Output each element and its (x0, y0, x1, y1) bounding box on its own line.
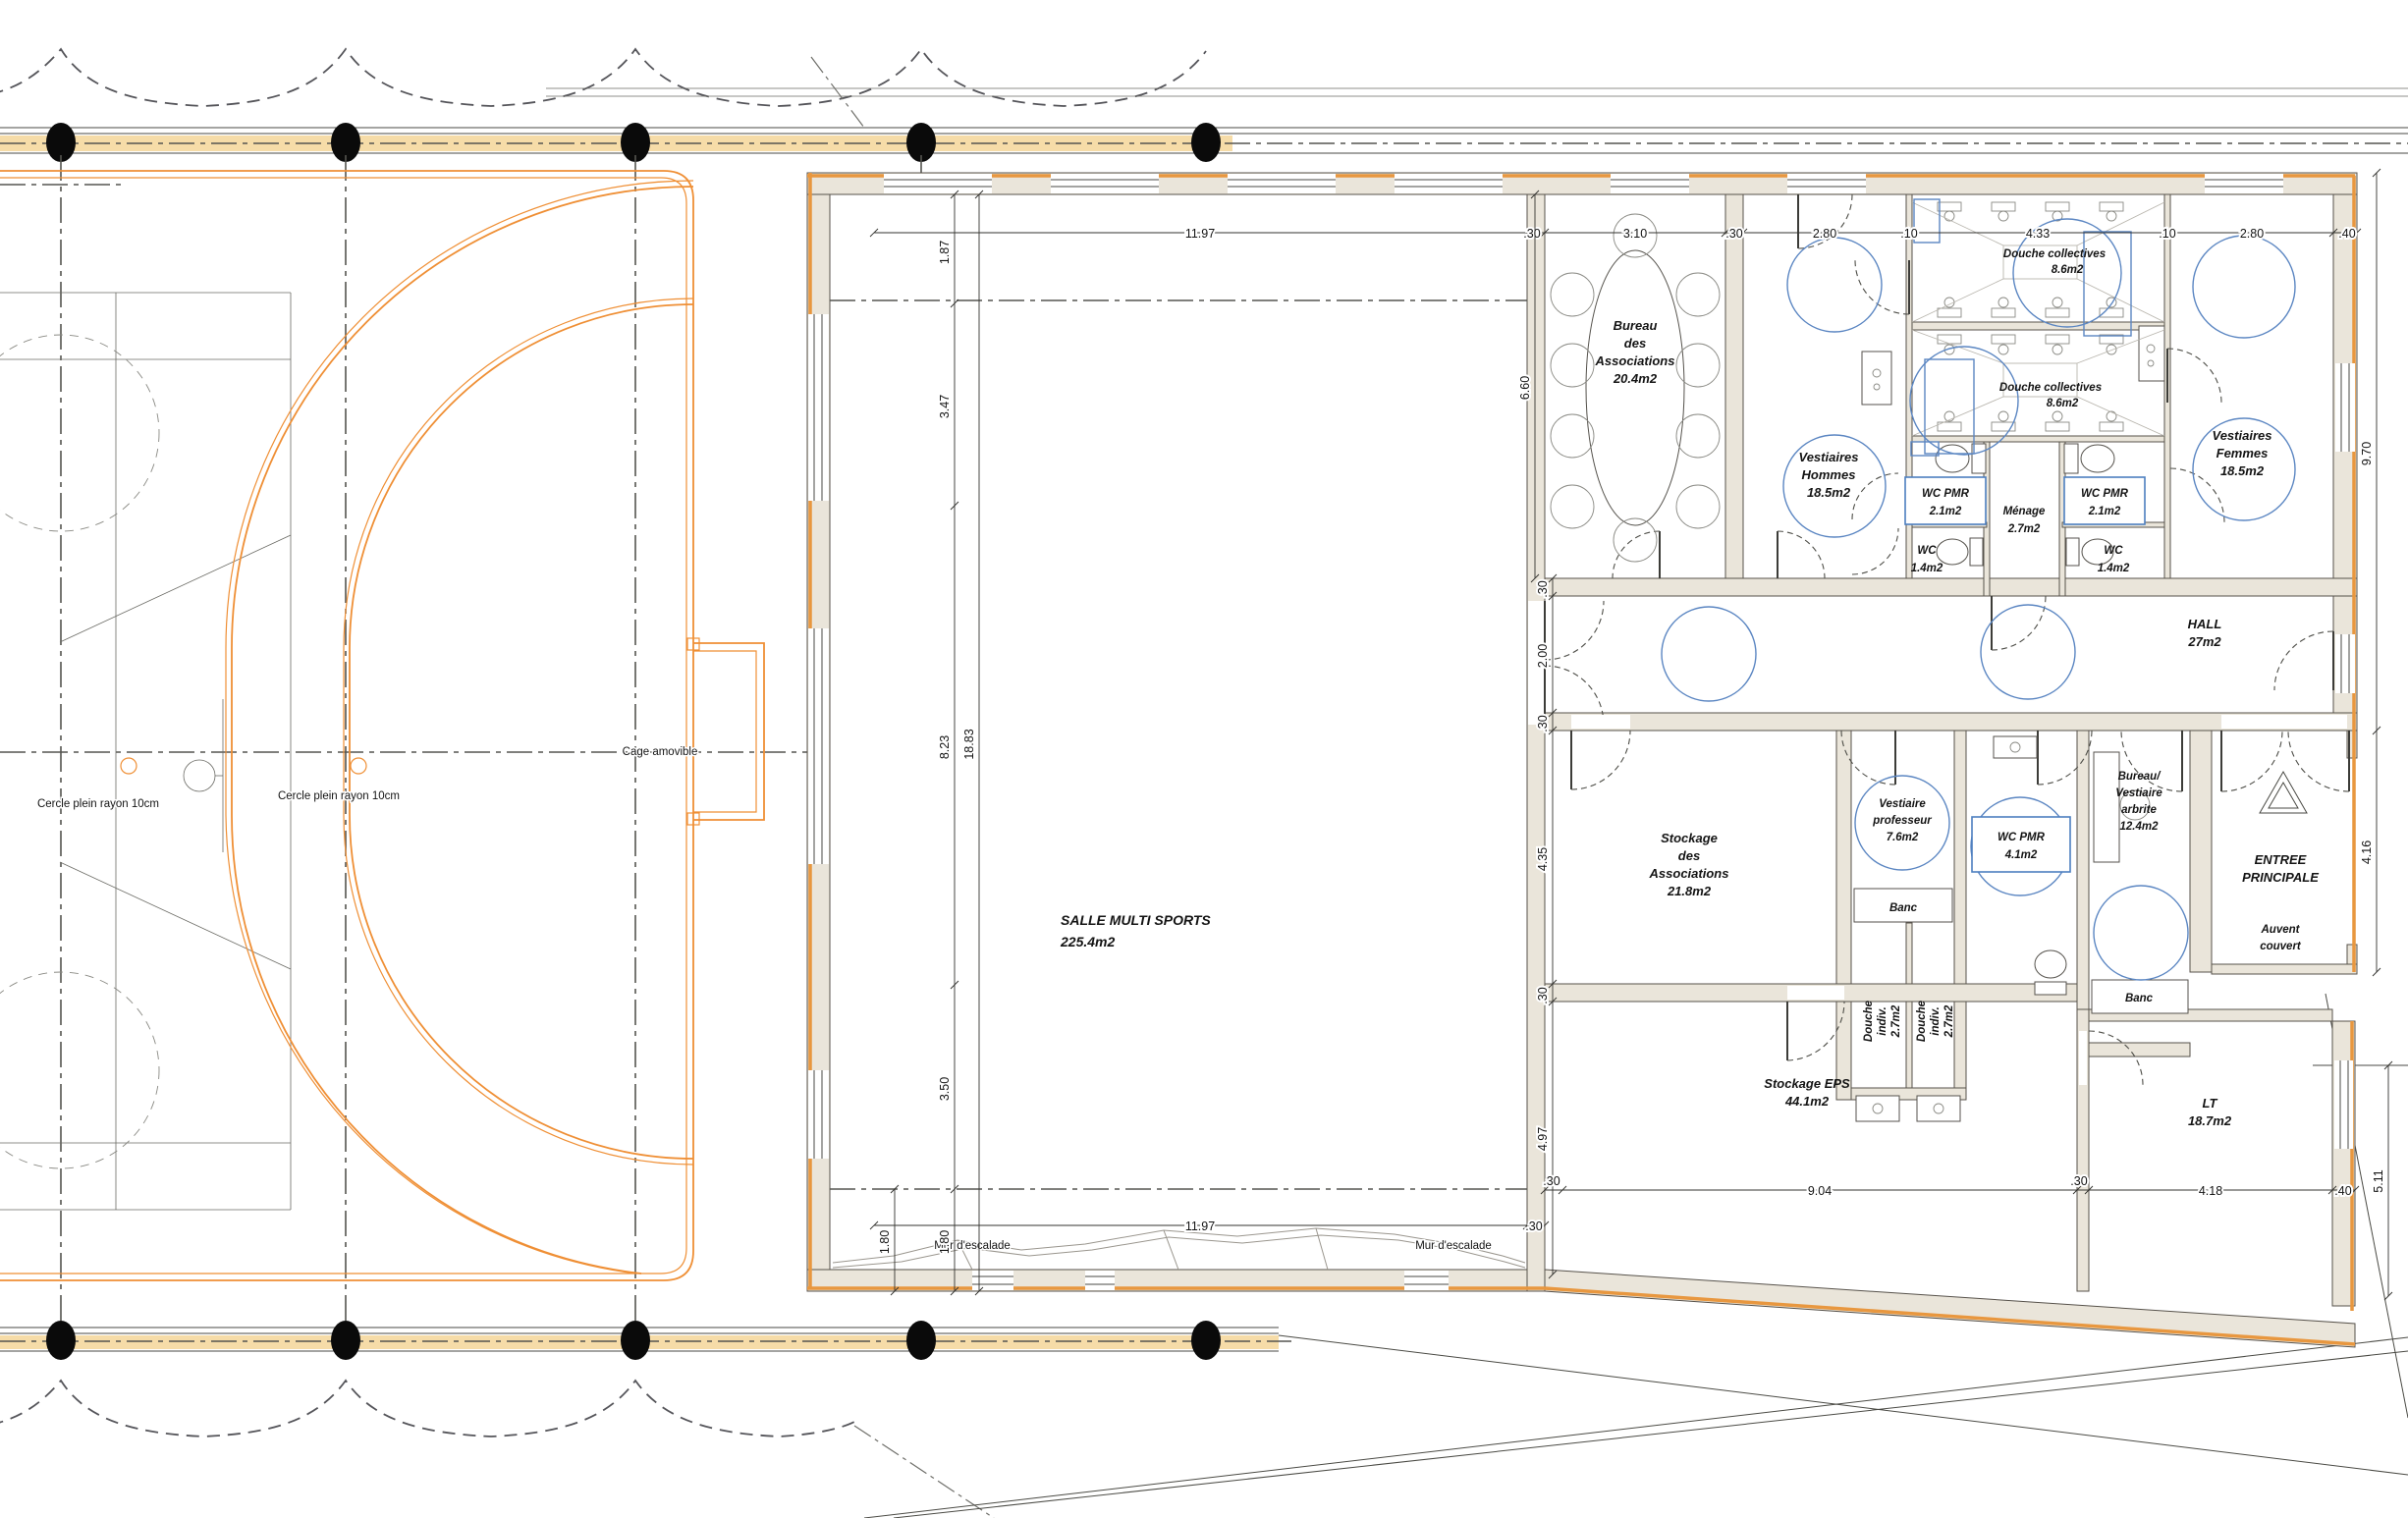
dim-left-5: 1.80 (938, 1230, 952, 1254)
dim-top-1: 11.97 (1185, 227, 1215, 241)
site-boundaries (0, 49, 2408, 1518)
window-left-1 (808, 314, 829, 501)
label-salle-2: 225.4m2 (1060, 934, 1115, 949)
dim-bottom-6: .30 (2070, 1174, 2087, 1188)
sink-vhommes (1862, 352, 1891, 405)
window-top-4 (1395, 174, 1503, 193)
window-top-1 (884, 174, 992, 193)
dim-right-1: 9.70 (2360, 442, 2374, 465)
label-wcpmr2-1: WC PMR (1998, 832, 2046, 843)
floor-plan-drawing: Cercle plein rayon 10cm Cercle plein ray… (0, 0, 2408, 1518)
label-eps-1: Stockage EPS (1764, 1076, 1850, 1091)
building-walls (807, 173, 2357, 1347)
dim-top-6: .10 (1900, 227, 1917, 241)
outdoor-court: Cercle plein rayon 10cm Cercle plein ray… (0, 171, 764, 1280)
sink-wcpmr2 (1994, 736, 2037, 758)
dim-mid-2: 2.00 (1536, 644, 1550, 668)
penalty-spot-1 (121, 758, 137, 774)
label-salle-1: SALLE MULTI SPORTS (1061, 912, 1211, 928)
dim-mid-1: .30 (1536, 580, 1550, 597)
dim-bottom-4: .30 (1543, 1174, 1560, 1188)
window-right-1 (2335, 363, 2355, 452)
label-cercle-2: Cercle plein rayon 10cm (278, 790, 400, 802)
dim-mid-7: 4.97 (1536, 1127, 1550, 1151)
label-arbitre-3: arbrite (2121, 804, 2157, 816)
label-wcR-1: WC (2104, 545, 2123, 557)
dim-bottom-3: 1.80 (878, 1230, 892, 1254)
bottom-scallop-line (0, 1381, 854, 1437)
label-wcpmr2-2: 4.1m2 (2004, 849, 2038, 861)
window-top-6 (1787, 174, 1866, 193)
label-wcR-2: 1.4m2 (2098, 563, 2130, 574)
label-wcpmrR-2: 2.1m2 (2088, 506, 2121, 517)
label-arbitre-2: Vestiaire (2115, 787, 2162, 799)
label-arbitre-1: Bureau/ (2118, 771, 2162, 783)
label-douche1-2: 8.6m2 (2052, 264, 2084, 276)
desk-arbitre (2094, 752, 2119, 862)
label-auvent-2: couvert (2260, 941, 2302, 952)
basketball-markings (0, 293, 291, 1210)
dim-mid-5: 4.35 (1536, 847, 1550, 871)
dim-mid-3: .30 (1536, 715, 1550, 732)
label-vhommes-1: Vestiaires (1799, 450, 1859, 464)
window-bottom-2 (1085, 1271, 1115, 1290)
label-bureau-3: Associations (1595, 353, 1675, 368)
label-cercle-1: Cercle plein rayon 10cm (37, 798, 159, 810)
label-vhommes-3: 18.5m2 (1807, 485, 1851, 500)
label-stockassoc-1: Stockage (1661, 831, 1718, 845)
label-bureau-1: Bureau (1614, 318, 1658, 333)
sink-dind-2 (1917, 1096, 1960, 1121)
toilet-wcpmr-right (2064, 444, 2114, 473)
label-dind2-3: 2.7m2 (1943, 1004, 1955, 1038)
basketball-hoop-icon (184, 760, 215, 791)
dim-right-2: 4.16 (2360, 840, 2374, 864)
dim-bottom-2: .30 (1525, 1220, 1542, 1233)
toilet-wcpmr-left (1936, 444, 1986, 473)
dim-top-4: .30 (1725, 227, 1742, 241)
dim-left-1: 1.87 (938, 241, 952, 264)
label-dind1-1: Douche (1863, 1000, 1875, 1042)
floor-plan-page: Cercle plein rayon 10cm Cercle plein ray… (0, 0, 2408, 1518)
dim-top-8: .10 (2159, 227, 2175, 241)
label-cage: Cage amovible (623, 746, 698, 758)
label-wcL-2: 1.4m2 (1911, 563, 1943, 574)
wall-hall-top (1545, 578, 2357, 596)
label-dind2-2: indiv. (1930, 1006, 1942, 1035)
window-bottom-3 (1404, 1271, 1449, 1290)
label-stockassoc-3: Associations (1649, 866, 1729, 881)
dim-bottom-1: 11.97 (1185, 1220, 1215, 1233)
toilet-wcpmr2 (2035, 950, 2066, 995)
dim-left-2: 3.47 (938, 395, 952, 418)
label-vprof-1: Vestiaire (1879, 798, 1926, 810)
handball-markings (0, 171, 764, 1280)
window-top-7 (2205, 174, 2283, 193)
label-eps-2: 44.1m2 (1784, 1094, 1830, 1109)
dim-top-10: .40 (2338, 227, 2355, 241)
window-top-2 (1051, 174, 1159, 193)
dim-top-7: 4.33 (2026, 227, 2050, 241)
dim-left-6: 18.83 (962, 729, 976, 759)
label-lt-1: LT (2203, 1096, 2218, 1111)
window-top-5 (1611, 174, 1689, 193)
label-banc-2: Banc (2125, 993, 2154, 1004)
sink-dind-1 (1856, 1096, 1899, 1121)
label-douche2-2: 8.6m2 (2047, 398, 2079, 409)
window-left-2 (808, 628, 829, 864)
dim-bottom-5: 9.04 (1808, 1184, 1832, 1198)
dim-top-5: 2.80 (1813, 227, 1836, 241)
dim-right-3: 5.11 (2372, 1169, 2385, 1192)
goal-cage (687, 638, 764, 825)
dim-left-4: 3.50 (938, 1077, 952, 1101)
dim-top-9: 2.80 (2240, 227, 2264, 241)
label-wcpmrL-1: WC PMR (1922, 488, 1970, 500)
label-vprof-2: professeur (1872, 815, 1932, 827)
label-wcL-1: WC (1917, 545, 1937, 557)
window-hall (2335, 634, 2355, 693)
window-lt (2334, 1060, 2353, 1149)
label-wcpmrR-1: WC PMR (2081, 488, 2129, 500)
label-vprof-3: 7.6m2 (1887, 832, 1919, 843)
dim-mid-4: 6.60 (1518, 376, 1532, 400)
label-menage-2: 2.7m2 (2007, 523, 2041, 535)
label-douche1-1: Douche collectives (2003, 248, 2106, 260)
label-bureau-2: des (1624, 336, 1646, 351)
label-hall-2: 27m2 (2187, 634, 2221, 649)
label-stockassoc-4: 21.8m2 (1667, 884, 1712, 898)
dim-top-3: 3.10 (1623, 227, 1647, 241)
top-diagonal-dashed (811, 57, 864, 128)
label-dind1-2: indiv. (1877, 1006, 1888, 1035)
label-entree-2: PRINCIPALE (2242, 870, 2319, 885)
penalty-spot-2 (351, 758, 366, 774)
cladding (807, 173, 2355, 1344)
label-banc-1: Banc (1889, 902, 1918, 914)
label-dind2-1: Douche (1916, 1000, 1928, 1042)
entrance-triangle-icon (2260, 772, 2307, 813)
dim-top-2: .30 (1523, 227, 1540, 241)
label-entree-1: ENTREE (2255, 852, 2307, 867)
label-mur-right: Mur d'escalade (1415, 1240, 1492, 1252)
window-left-3 (808, 1070, 829, 1159)
meeting-table (1551, 214, 1720, 562)
dim-bottom-8: .40 (2334, 1184, 2351, 1198)
label-wcpmrL-2: 2.1m2 (1929, 506, 1962, 517)
toilet-wc-left (1937, 538, 1983, 566)
label-bureau-4: 20.4m2 (1613, 371, 1658, 386)
label-stockassoc-2: des (1678, 848, 1700, 863)
label-vfemmes-2: Femmes (2216, 446, 2269, 461)
label-menage-1: Ménage (2003, 506, 2046, 517)
label-hall-1: HALL (2188, 617, 2222, 631)
label-vhommes-2: Hommes (1802, 467, 1856, 482)
dim-bottom-7: 4.18 (2199, 1184, 2222, 1198)
label-vfemmes-3: 18.5m2 (2220, 463, 2265, 478)
label-vfemmes-1: Vestiaires (2213, 428, 2272, 443)
window-top-3 (1228, 174, 1336, 193)
label-auvent-1: Auvent (2261, 924, 2301, 936)
window-bottom-1 (972, 1271, 1013, 1290)
label-dind1-3: 2.7m2 (1890, 1004, 1902, 1038)
top-scallop-line (0, 49, 1206, 106)
label-douche2-1: Douche collectives (1999, 382, 2102, 394)
label-lt-2: 18.7m2 (2188, 1113, 2232, 1128)
wall-salle-partition (1527, 194, 1545, 1291)
label-arbitre-4: 12.4m2 (2119, 821, 2159, 833)
sink-corridor (2139, 326, 2164, 381)
wcpmr2-box (1972, 817, 2070, 872)
wall-porch-left (2190, 731, 2212, 972)
dim-mid-6: .30 (1536, 987, 1550, 1003)
dim-left-3: 8.23 (938, 735, 952, 759)
